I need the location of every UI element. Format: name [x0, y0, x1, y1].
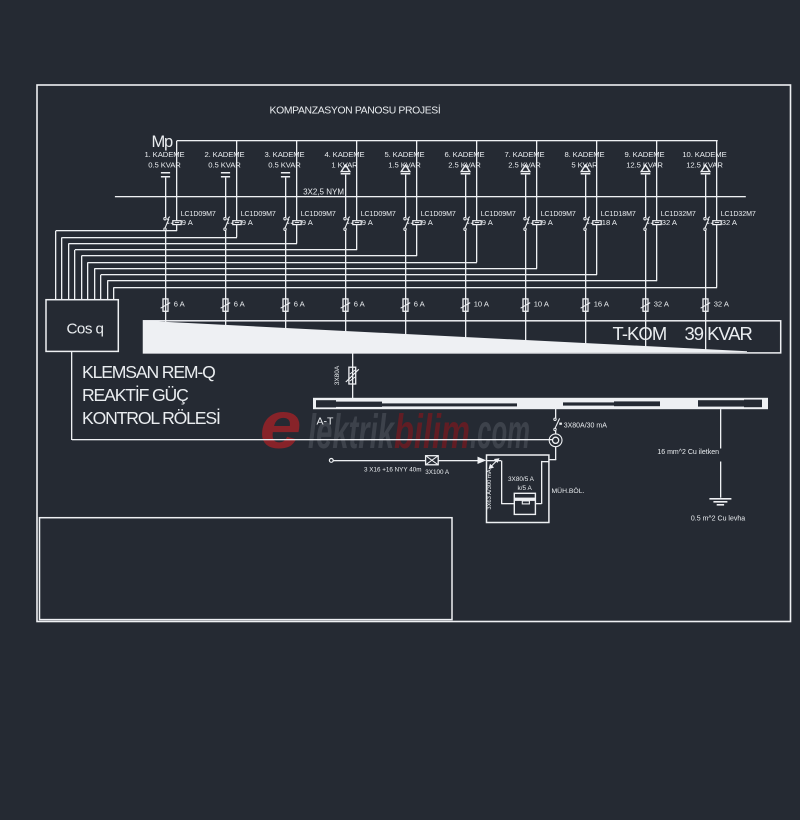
svg-text:5. KADEME: 5. KADEME	[384, 150, 424, 159]
svg-text:10 A: 10 A	[534, 300, 550, 309]
svg-text:16 mm^2 Cu iletken: 16 mm^2 Cu iletken	[657, 449, 719, 456]
svg-text:LC1D09M7: LC1D09M7	[481, 210, 516, 218]
svg-text:18 A: 18 A	[602, 218, 618, 227]
svg-text:9 A: 9 A	[182, 218, 194, 227]
svg-text:k/5 A: k/5 A	[518, 485, 533, 492]
svg-text:9 A: 9 A	[422, 218, 434, 227]
svg-text:LC1D09M7: LC1D09M7	[181, 210, 216, 218]
svg-text:2. KADEME: 2. KADEME	[204, 150, 244, 159]
svg-text:3X80A: 3X80A	[334, 365, 341, 385]
svg-text:T-KOM: T-KOM	[613, 323, 667, 344]
svg-text:32 A: 32 A	[662, 218, 678, 227]
svg-text:6 A: 6 A	[174, 300, 186, 309]
svg-text:10. KADEME: 10. KADEME	[682, 150, 726, 159]
svg-text:3X100 A: 3X100 A	[425, 469, 450, 476]
svg-text:9 A: 9 A	[302, 218, 314, 227]
svg-text:3 X16 +16 NYY 40m: 3 X16 +16 NYY 40m	[364, 467, 421, 474]
svg-text:LC1D09M7: LC1D09M7	[541, 210, 576, 218]
svg-text:6 A: 6 A	[234, 300, 246, 309]
svg-text:KOMPANZASYON PANOSU PROJESİ: KOMPANZASYON PANOSU PROJESİ	[270, 103, 441, 116]
svg-text:12.5 KVAR: 12.5 KVAR	[686, 160, 723, 169]
svg-text:6. KADEME: 6. KADEME	[444, 150, 484, 159]
svg-text:3X80/5 A: 3X80/5 A	[508, 476, 535, 483]
svg-text:Mp: Mp	[152, 133, 174, 151]
svg-text:A-T: A-T	[317, 416, 335, 428]
svg-text:LC1D32M7: LC1D32M7	[721, 210, 756, 218]
svg-text:lektrik: lektrik	[308, 406, 395, 459]
svg-text:bilim: bilim	[394, 406, 470, 459]
svg-text:3X80A/30 mA: 3X80A/30 mA	[564, 422, 608, 429]
svg-text:32 A: 32 A	[722, 218, 738, 227]
svg-text:KLEMSAN REM-Q: KLEMSAN REM-Q	[82, 362, 215, 382]
svg-text:LC1D09M7: LC1D09M7	[301, 210, 336, 218]
svg-text:9 A: 9 A	[482, 218, 494, 227]
svg-text:39 KVAR: 39 KVAR	[685, 323, 753, 344]
svg-text:16 A: 16 A	[594, 300, 610, 309]
svg-text:32 A: 32 A	[714, 300, 730, 309]
svg-text:7. KADEME: 7. KADEME	[504, 150, 544, 159]
svg-text:9. KADEME: 9. KADEME	[624, 150, 664, 159]
svg-text:6 A: 6 A	[294, 300, 306, 309]
svg-text:9 A: 9 A	[242, 218, 254, 227]
svg-text:.com: .com	[470, 406, 530, 459]
svg-text:REAKTİF GÜÇ: REAKTİF GÜÇ	[82, 385, 189, 405]
svg-text:Cos q: Cos q	[67, 321, 104, 338]
svg-text:LC1D09M7: LC1D09M7	[361, 210, 396, 218]
svg-text:LC1D09M7: LC1D09M7	[241, 210, 276, 218]
svg-text:1 KVAR: 1 KVAR	[331, 160, 358, 169]
svg-text:LC1D09M7: LC1D09M7	[421, 210, 456, 218]
svg-text:3. KADEME: 3. KADEME	[264, 150, 304, 159]
svg-text:5 KVAR: 5 KVAR	[571, 160, 598, 169]
svg-text:9 A: 9 A	[362, 218, 374, 227]
svg-text:LC1D18M7: LC1D18M7	[601, 210, 636, 218]
svg-text:4. KADEME: 4. KADEME	[324, 150, 364, 159]
svg-text:6 A: 6 A	[354, 300, 366, 309]
svg-text:6 A: 6 A	[414, 300, 426, 309]
svg-text:9 A: 9 A	[542, 218, 554, 227]
svg-text:12.5 KVAR: 12.5 KVAR	[626, 160, 663, 169]
svg-text:32 A: 32 A	[654, 300, 670, 309]
svg-text:10 A: 10 A	[474, 300, 490, 309]
svg-text:LC1D32M7: LC1D32M7	[661, 210, 696, 218]
svg-text:1. KADEME: 1. KADEME	[144, 150, 184, 159]
svg-text:e: e	[260, 389, 302, 463]
svg-text:MÜH.BÖL.: MÜH.BÖL.	[552, 487, 585, 495]
svg-text:0.5 m^2 Cu levha: 0.5 m^2 Cu levha	[691, 515, 745, 522]
svg-text:3X63 A/300 mA: 3X63 A/300 mA	[487, 469, 493, 509]
svg-text:3X2,5 NYM: 3X2,5 NYM	[303, 187, 344, 196]
svg-text:KONTROL RÖLESİ: KONTROL RÖLESİ	[82, 408, 220, 428]
svg-text:8. KADEME: 8. KADEME	[564, 150, 604, 159]
